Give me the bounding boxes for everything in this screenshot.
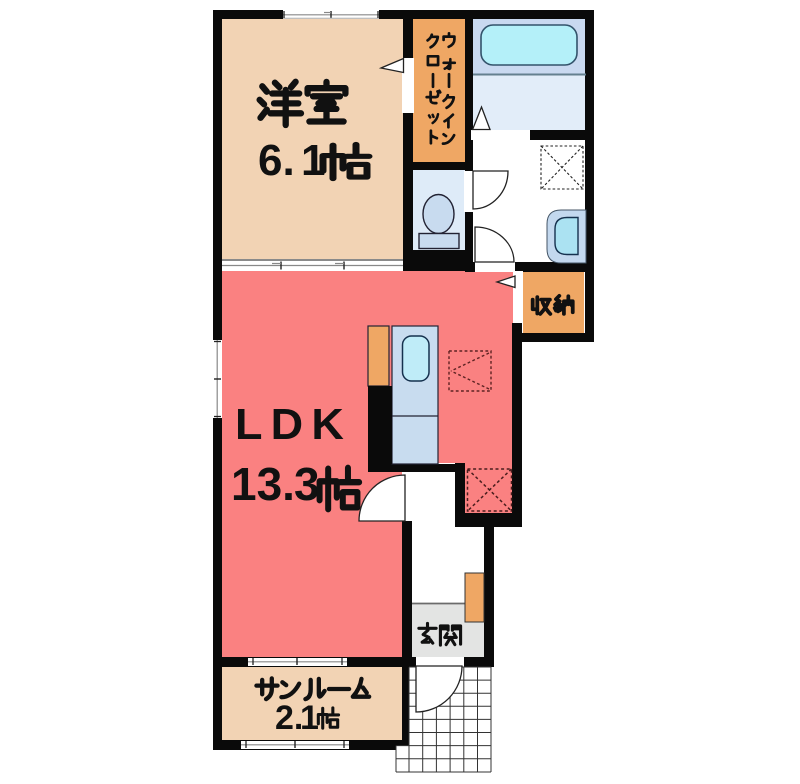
svg-text:1: 1 <box>300 699 319 737</box>
svg-text:13.: 13. <box>231 458 295 510</box>
svg-text:3: 3 <box>294 458 320 510</box>
svg-text:LDK: LDK <box>235 400 352 449</box>
svg-text:6.: 6. <box>258 136 295 185</box>
